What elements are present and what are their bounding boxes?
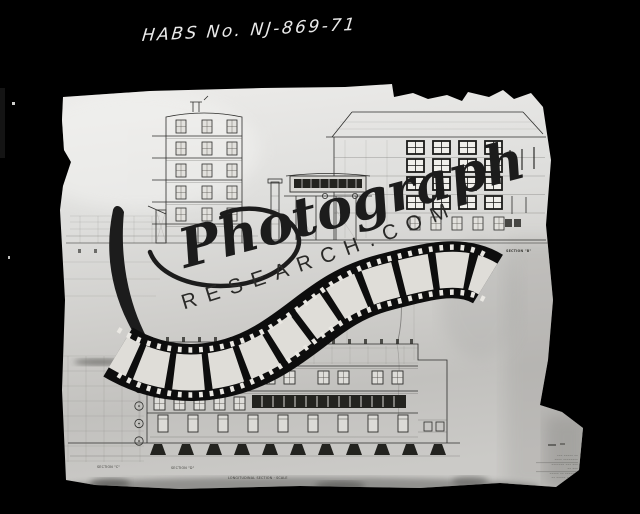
title-block-line: ––––– –– ––––––– <box>550 471 579 475</box>
photo-paper: SECTION "B" <box>20 75 595 500</box>
title-block-line: ––––––– ––– ––– <box>551 462 578 466</box>
label-section-b: SECTION "B" <box>506 249 531 253</box>
dust-specks <box>0 88 15 259</box>
window <box>158 415 408 432</box>
photo-of-drawing: SECTION "B" <box>0 0 640 514</box>
label-section-d: SECTION "D" <box>171 466 195 470</box>
label-scale-note: LONGITUDINAL SECTION · SCALE <box>228 476 288 480</box>
title-block-line: ––– ––––– –– <box>557 453 578 457</box>
title-block-line: –– ––––– –––––– <box>551 476 578 480</box>
photo-mount: HABS No. NJ-869-71 <box>0 0 640 514</box>
label-section-c: SECTION "C" <box>97 465 120 469</box>
title-block-line: –– ––– <box>568 467 579 471</box>
title-block-line: –––– –––––––– <box>555 458 579 462</box>
